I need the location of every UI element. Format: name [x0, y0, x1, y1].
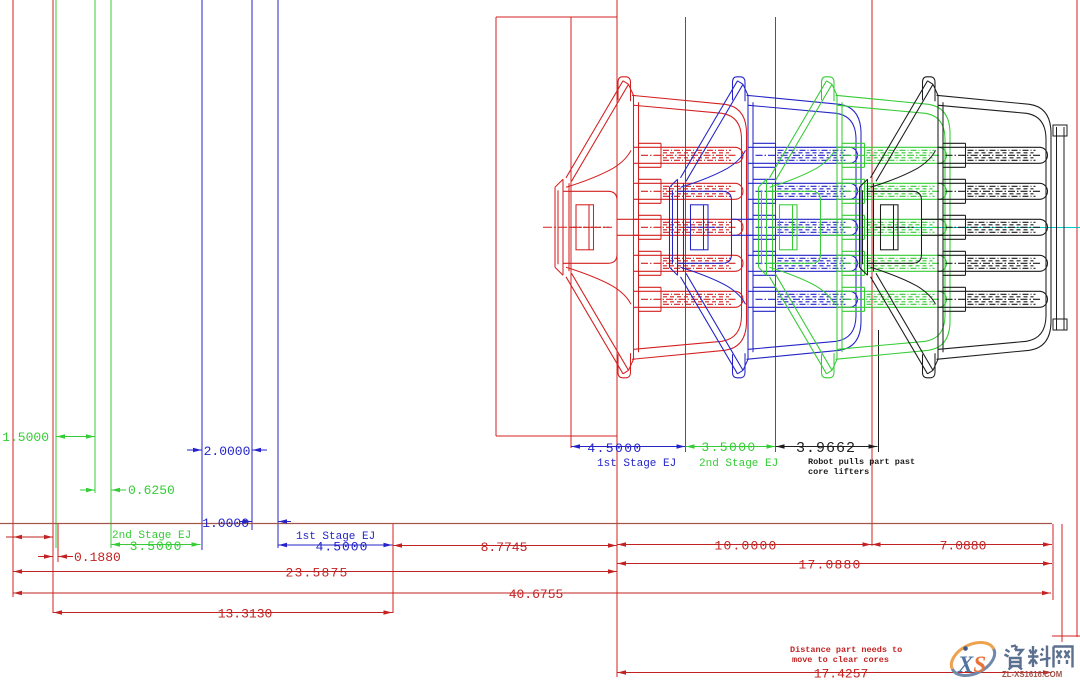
svg-text:ZL-XS1616.COM: ZL-XS1616.COM	[1002, 670, 1062, 679]
svg-text:4.5000: 4.5000	[316, 540, 369, 555]
svg-text:core lifters: core lifters	[808, 467, 869, 477]
svg-text:0.1880: 0.1880	[74, 550, 121, 565]
svg-text:2nd Stage EJ: 2nd Stage EJ	[699, 458, 778, 470]
svg-text:1st Stage EJ: 1st Stage EJ	[597, 458, 676, 470]
svg-text:1.0000: 1.0000	[202, 516, 249, 531]
svg-text:XS: XS	[957, 652, 986, 677]
svg-text:1.5000: 1.5000	[2, 430, 49, 445]
svg-text:Robot pulls part past: Robot pulls part past	[808, 457, 915, 467]
svg-text:2.0000: 2.0000	[204, 444, 251, 459]
svg-text:8.7745: 8.7745	[481, 540, 528, 555]
svg-text:4.5000: 4.5000	[587, 441, 642, 456]
svg-text:3.9662: 3.9662	[796, 440, 856, 457]
svg-text:0.6250: 0.6250	[128, 483, 175, 498]
svg-text:17.0880: 17.0880	[798, 558, 861, 573]
svg-text:13.3130: 13.3130	[218, 607, 273, 622]
svg-text:move to clear cores: move to clear cores	[792, 655, 889, 665]
svg-text:3.5000: 3.5000	[701, 440, 756, 455]
svg-text:23.5875: 23.5875	[285, 566, 348, 581]
svg-text:10.0000: 10.0000	[714, 539, 777, 554]
svg-text:7.0880: 7.0880	[940, 539, 987, 554]
svg-text:40.6755: 40.6755	[509, 587, 564, 602]
svg-text:3.5000: 3.5000	[130, 539, 183, 554]
svg-text:17.4257: 17.4257	[814, 667, 869, 682]
svg-text:Distance part needs to: Distance part needs to	[790, 645, 902, 655]
